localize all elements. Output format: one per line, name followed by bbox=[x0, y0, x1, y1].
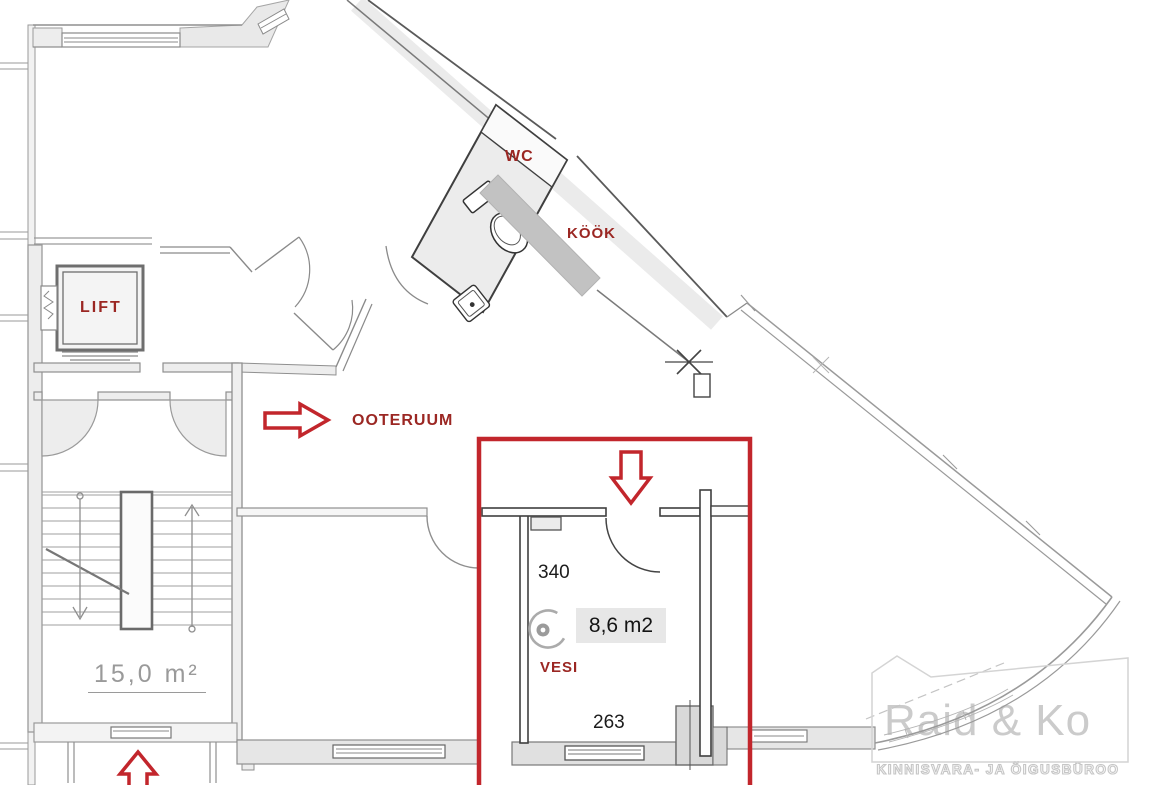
floor-plan-canvas: Raid & Ko KINNISVARA- JA ÕIGUSBÜROO bbox=[0, 0, 1170, 785]
stair-break-line bbox=[46, 549, 129, 594]
stair-direction-down-icon bbox=[73, 493, 87, 619]
curved-facade bbox=[741, 295, 1120, 750]
facade-window-detail bbox=[813, 357, 1013, 742]
column-junction bbox=[665, 350, 713, 397]
door-swing-middle-room bbox=[427, 516, 479, 568]
exterior-left-wall bbox=[0, 25, 42, 785]
room-label-lift: LIFT bbox=[80, 299, 122, 317]
door-swing-left bbox=[42, 400, 98, 456]
top-wall-and-window bbox=[33, 0, 289, 244]
direction-arrow-up-icon bbox=[120, 752, 156, 785]
window-room bbox=[565, 746, 644, 760]
area-label-highlighted-room: 8,6 m2 bbox=[576, 608, 666, 643]
stair-stringer bbox=[121, 492, 152, 629]
room-label-ooteruum: OOTERUUM bbox=[352, 412, 453, 430]
window-left bbox=[111, 727, 171, 738]
door-swing-right bbox=[170, 400, 226, 456]
middle-room bbox=[237, 508, 479, 568]
room-beside-lift bbox=[160, 237, 372, 375]
vestibule bbox=[34, 363, 238, 456]
area-label-stair-hall: 15,0 m² bbox=[88, 660, 206, 693]
room-label-wc: WC bbox=[505, 148, 534, 166]
window-middle bbox=[333, 745, 445, 758]
direction-arrow-right-icon bbox=[265, 404, 328, 436]
dimension-width: 340 bbox=[538, 562, 570, 584]
stair-direction-up-icon bbox=[185, 505, 199, 632]
wc-room bbox=[386, 105, 567, 323]
water-point-icon bbox=[530, 610, 564, 647]
room-label-kook: KÖÖK bbox=[567, 225, 616, 242]
door-swing-room bbox=[606, 518, 660, 572]
direction-arrow-down-icon bbox=[612, 452, 650, 503]
double-door-swing bbox=[255, 237, 353, 350]
room-label-vesi: VESI bbox=[540, 659, 578, 676]
dimension-depth: 263 bbox=[593, 712, 625, 734]
window-top-left bbox=[62, 33, 180, 47]
